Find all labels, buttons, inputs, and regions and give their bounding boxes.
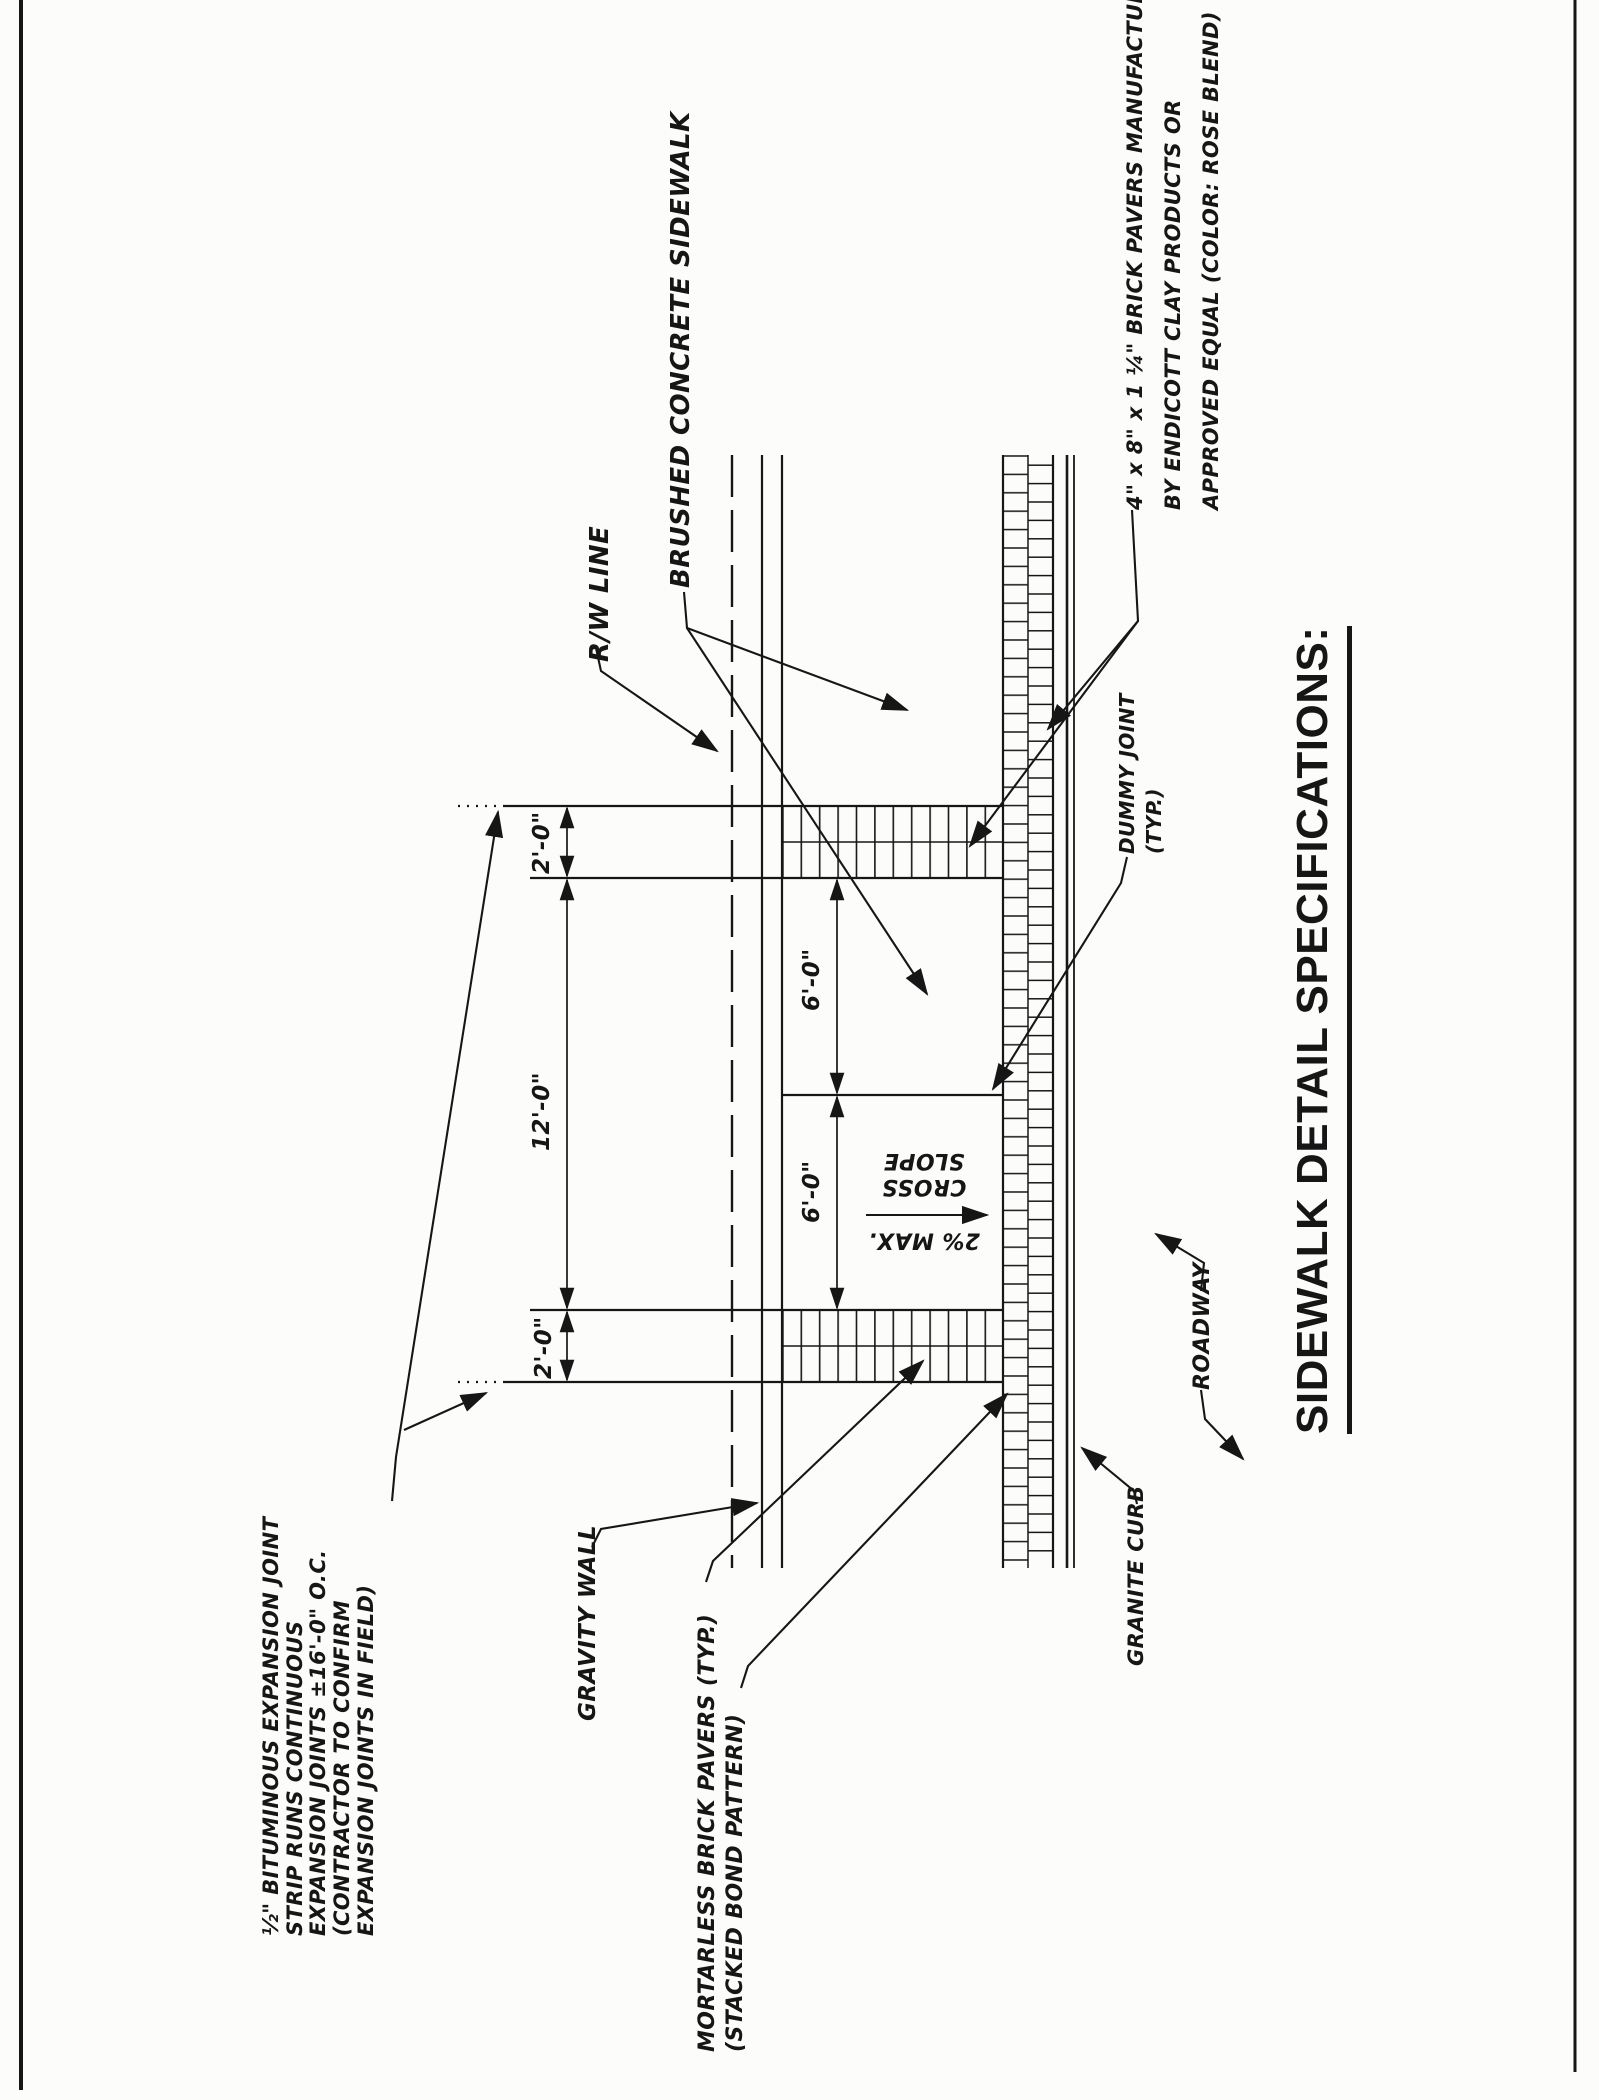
mortarless-pavers-note: MORTARLESS BRICK PAVERS (TYP.) (STACKED … — [694, 1614, 750, 2052]
drawing-sheet: R/W LINE BRUSHED CONCRETE SIDEWALK 4" x … — [0, 0, 1599, 2100]
granite-curb-label: GRANITE CURB — [1125, 1486, 1149, 1666]
dim-panel-upper: 6'-0" — [799, 948, 825, 1011]
cross-slope-words: CROSS SLOPE — [866, 1146, 982, 1199]
dummy-joint-label: DUMMY JOINT (TYP.) — [1114, 693, 1167, 854]
sidewalk-plan-linework — [0, 0, 1599, 2100]
granite-curb-lines — [1067, 455, 1074, 1568]
roadway-label: ROADWAY — [1190, 1262, 1215, 1390]
gravity-wall-lines — [762, 455, 782, 1568]
gravity-wall-label: GRAVITY WALL — [575, 1525, 601, 1721]
cross-slope-value: 2% MAX. — [866, 1226, 982, 1252]
page-title: SIDEWALK DETAIL SPECIFICATIONS: — [1288, 626, 1352, 1434]
dim-paver-band-top: 2'-0" — [529, 811, 555, 874]
brick-paver-note: 4" x 8" x 1 ¼" BRICK PAVERS MANUFACTURED… — [1117, 0, 1230, 510]
dim-paver-band-bottom: 2'-0" — [531, 1316, 557, 1379]
rw-line-label: R/W LINE — [586, 526, 616, 662]
expansion-joint-note: ½" BITUMINOUS EXPANSION JOINT STRIP RUNS… — [260, 1517, 379, 1936]
dim-panel-lower: 6'-0" — [799, 1160, 825, 1223]
leader-arrows — [392, 510, 1243, 1688]
curb-paver-band — [1003, 455, 1053, 1568]
dim-sidewalk-width: 12'-0" — [529, 1072, 555, 1151]
brushed-concrete-label: BRUSHED CONCRETE SIDEWALK — [667, 111, 697, 588]
